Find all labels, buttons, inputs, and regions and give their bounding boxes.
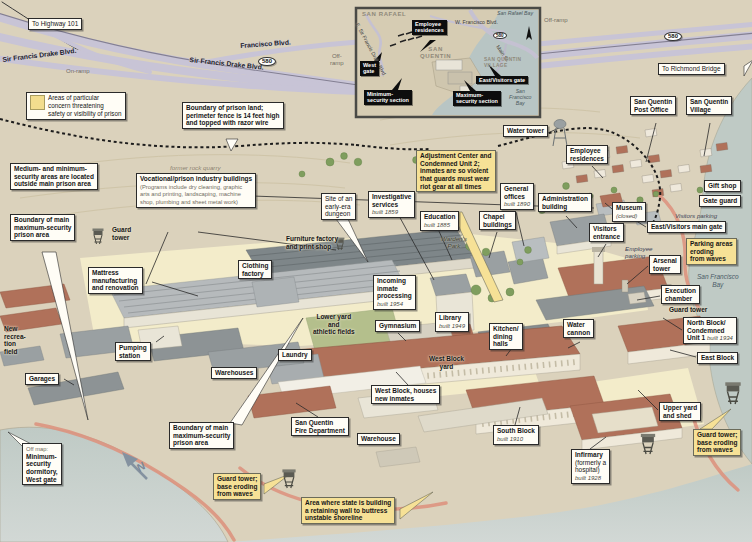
pumping-station-label: Pumpingstation (115, 342, 151, 361)
guard-tower-label-right: Guard tower (669, 306, 707, 314)
inset-580-shield: 580 (493, 32, 507, 39)
medium-minimum-label: Medium- and minimum-security areas are l… (10, 163, 98, 190)
furniture-factory-label: Furniture factoryand print shop (286, 235, 338, 250)
visitors-parking-label: Visitors parking (675, 212, 717, 219)
laundry-label: Laundry (278, 349, 312, 361)
to-richmond-bridge-label: To Richmond Bridge (658, 63, 725, 75)
legend-box: Areas of particular concern threatening … (26, 92, 126, 120)
francisco-blvd-label: Francisco Blvd. (240, 38, 291, 50)
off-ramp-label-mid: Off-ramp (330, 53, 344, 67)
highway-580-shield-left: 580 (258, 57, 276, 66)
former-rock-quarry-label: former rock quarry (170, 164, 221, 171)
san-francisco-bay-label-right: San FranciscoBay (697, 273, 739, 288)
east-visitors-main-gate-label: East/Visitors main gate (647, 221, 726, 233)
map-labels-layer: To Highway 101Francisco Blvd.Sir Francis… (0, 0, 752, 542)
north-arrow-letter: N (134, 459, 148, 474)
gift-shop-label: Gift shop (704, 180, 741, 192)
san-quentin-post-office-label: San QuentinPost Office (630, 96, 676, 115)
sir-francis-drake-blvd-label-left: Sir Francis Drake Blvd. (2, 47, 77, 64)
general-offices-label: Generalofficesbuilt 1890 (500, 183, 534, 210)
sir-francis-drake-blvd-label-mid: Sir Francis Drake Blvd. (189, 56, 264, 72)
legend-text: Areas of particular concern threatening … (48, 94, 122, 117)
boundary-prison-land-label: Boundary of prison land;perimeter fence … (182, 102, 284, 129)
clothing-factory-label: Clothingfactory (238, 260, 272, 279)
inset-maximum-security-label: Maximum-security section (453, 91, 501, 106)
mattress-label: Mattressmanufacturingand renovation (88, 267, 143, 294)
adjustment-center-label: Adjustment Center andCondemned Unit 2;in… (416, 150, 496, 192)
new-recreation-field-label: Newrecrea-tionfield (4, 325, 26, 356)
retaining-wall-label: Area where state is buildinga retaining … (301, 497, 395, 524)
lower-yard-label: Lower yardandathletic fields (313, 313, 355, 336)
fire-department-label: San QuentinFire Department (291, 417, 349, 436)
to-highway-101-label: To Highway 101 (28, 18, 82, 30)
education-label: Educationbuilt 1885 (420, 211, 459, 231)
upper-yard-label: Upper yardand shed (659, 402, 701, 421)
water-tower-label: Water tower (503, 125, 548, 137)
inset-san-quentin-village-label: SAN QUENTINVILLAGE (484, 57, 521, 68)
inset-san-rafael-label: SAN RAFAEL (362, 11, 406, 18)
execution-chamber-label: Executionchamber (661, 285, 700, 304)
inset-west-gate-label: Westgate (360, 61, 379, 76)
gate-guard-label: Gate guard (699, 195, 741, 207)
incoming-processing-label: Incominginmateprocessingbuilt 1954 (373, 275, 416, 310)
inset-san-rafael-bay-label: San Rafael Bay (497, 10, 533, 16)
inset-san-francisco-bay-label: SanFranciscoBay (509, 88, 532, 106)
north-block-label: North Block/CondemnedUnit 1 built 1934 (683, 317, 737, 344)
guard-tower-eroding-label-right: Guard tower;base erodingfrom waves (693, 429, 741, 456)
parking-eroding-label: Parking areaserodingfrom waves (686, 238, 737, 265)
inset-w-francisco-blvd-label: W. Francisco Blvd. (455, 19, 498, 25)
administration-label: Administrationbuilding (538, 193, 592, 212)
boundary-main-label-bottom: Boundary of mainmaximum-securityprison a… (169, 422, 234, 449)
guard-tower-label-top: Guardtower (112, 226, 131, 241)
guard-tower-eroding-label-left: Guard tower;base erodingfrom waves (213, 473, 261, 500)
west-block-label: West Block, housesnew inmates (371, 385, 440, 404)
inset-east-visitors-gate-label: East/Visitors gate (476, 76, 528, 84)
employee-residences-label: Employeeresidences (566, 145, 608, 164)
arsenal-tower-label: Arsenaltower (649, 255, 681, 274)
wardens-park-label: Warden'sPark (441, 235, 467, 250)
south-block-label: South Blockbuilt 1910 (493, 425, 539, 445)
san-quentin-village-label: San QuentinVillage (686, 96, 732, 115)
inset-minimum-security-label: Minimum-security section (364, 90, 412, 105)
san-quentin-prison-map: To Highway 101Francisco Blvd.Sir Francis… (0, 0, 752, 542)
east-block-label: East Block (697, 352, 738, 364)
off-map-label: Off map:Minimum-securitydormitory,West g… (22, 443, 62, 485)
inset-employee-residences-label: Employeeresidences (412, 20, 447, 35)
visitors-entrance-label: Visitorsentrance (589, 223, 624, 242)
infirmary-label: Infirmary(formerly ahospital)built 1928 (571, 449, 610, 484)
garages-label: Garages (25, 373, 59, 385)
inset-san-quentin-label: SANQUENTIN (420, 46, 451, 60)
off-ramp-label-right: Off-ramp (544, 17, 568, 24)
dungeon-site-label: Site of anearly-eradungeon (321, 193, 356, 220)
warehouse-label: Warehouse (357, 433, 400, 445)
legend-yellow-swatch (30, 95, 45, 110)
water-cannon-label: Watercannon (563, 319, 594, 338)
library-label: Librarybuilt 1949 (435, 312, 469, 332)
vocational-label: Vocational/prison industry buildings(Pro… (136, 173, 256, 208)
highway-580-shield-right: 580 (664, 32, 682, 41)
museum-label: Museum(closed) (612, 202, 646, 222)
west-block-yard-label: West Blockyard (429, 355, 464, 370)
investigative-services-label: Investigativeservicesbuilt 1859 (368, 191, 415, 218)
gymnasium-label: Gymnasium (375, 320, 420, 332)
warehouses-label: Warehouses (211, 367, 257, 379)
boundary-main-label-left: Boundary of mainmaximum-securityprison a… (10, 214, 75, 241)
kitchen-label: Kitchen/dininghalls (489, 323, 523, 350)
on-ramp-label: On-ramp (66, 68, 90, 75)
chapel-label: Chapelbuildings (479, 211, 516, 230)
